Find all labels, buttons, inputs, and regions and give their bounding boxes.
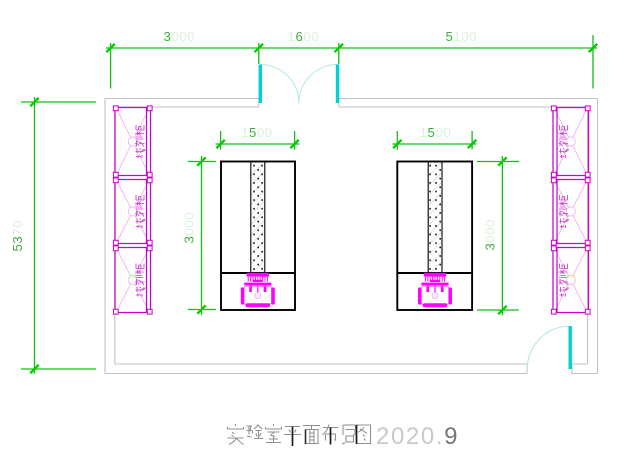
svg-text:2020.9: 2020.9 xyxy=(376,423,459,450)
svg-text:5100: 5100 xyxy=(446,29,478,44)
svg-text:3000: 3000 xyxy=(182,212,197,244)
svg-text:3000: 3000 xyxy=(164,29,196,44)
svg-text:1500: 1500 xyxy=(241,125,273,140)
svg-text:1500: 1500 xyxy=(420,125,452,140)
svg-text:1600: 1600 xyxy=(288,29,320,44)
svg-text:3000: 3000 xyxy=(483,219,498,251)
svg-text:5370: 5370 xyxy=(10,220,25,252)
